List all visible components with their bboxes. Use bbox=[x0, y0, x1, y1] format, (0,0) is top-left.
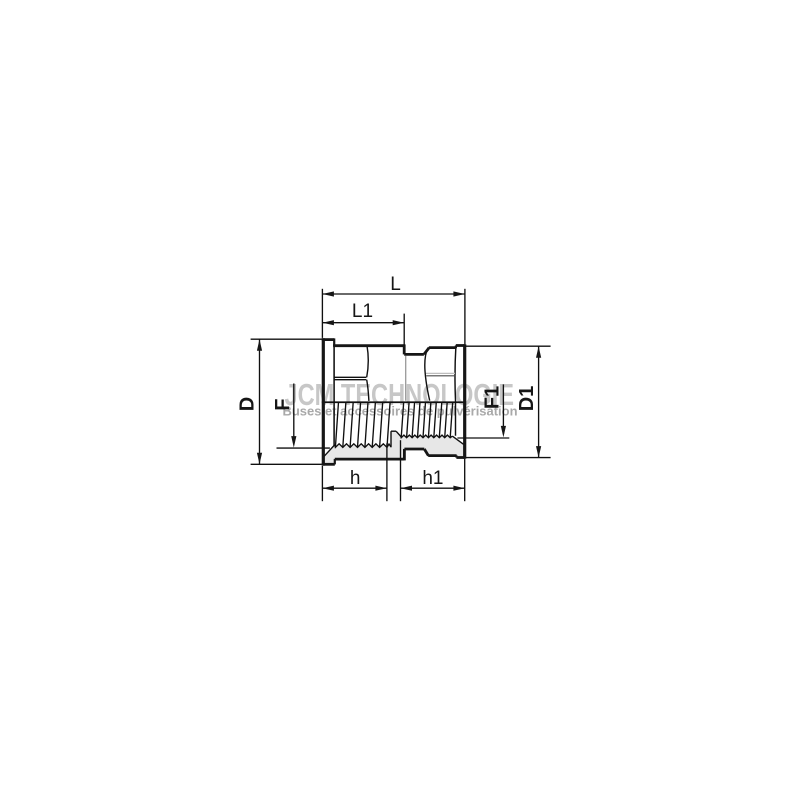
svg-text:F1: F1 bbox=[482, 386, 504, 409]
svg-text:h1: h1 bbox=[422, 468, 443, 489]
svg-text:D: D bbox=[237, 397, 259, 411]
svg-text:h: h bbox=[350, 468, 361, 489]
svg-text:L1: L1 bbox=[352, 301, 373, 322]
svg-text:F: F bbox=[272, 399, 294, 411]
svg-text:D1: D1 bbox=[516, 386, 538, 412]
svg-text:L: L bbox=[390, 274, 401, 295]
